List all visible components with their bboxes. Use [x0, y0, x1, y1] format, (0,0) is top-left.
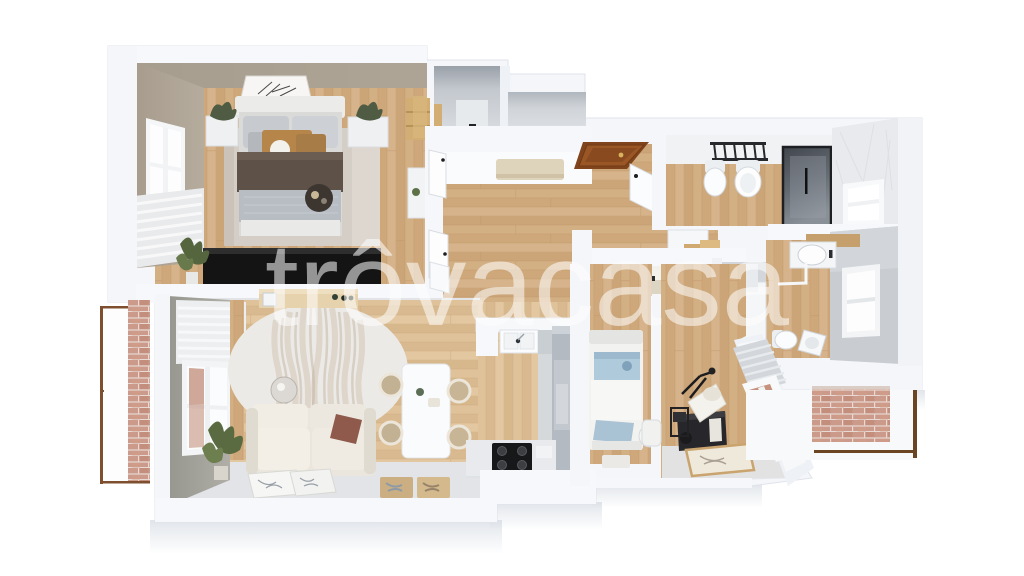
svg-text:trôvacasa: trôvacasa [265, 219, 789, 351]
